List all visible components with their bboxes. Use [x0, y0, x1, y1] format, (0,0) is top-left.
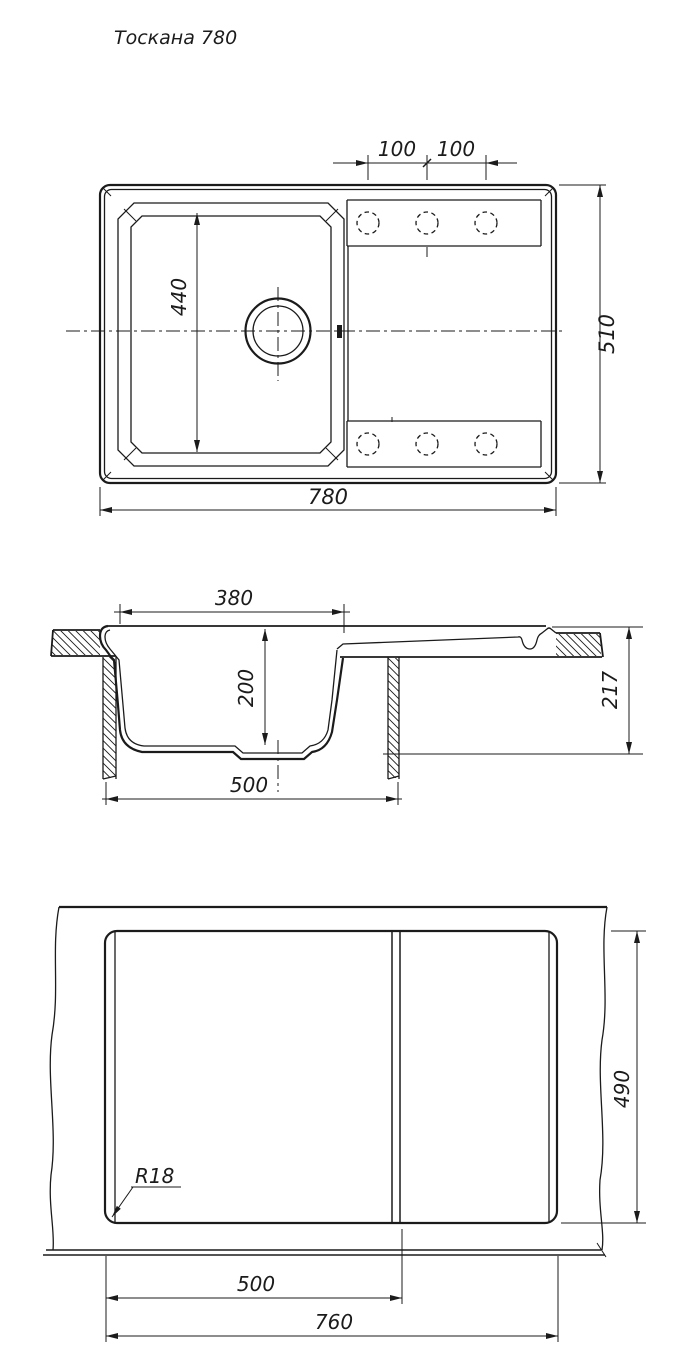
dimension-overall-width: 780: [100, 485, 556, 516]
bowl-inner-edge: [131, 216, 331, 453]
faucet-hole: [475, 433, 497, 455]
countertop-left-hatch: [52, 631, 100, 655]
faucet-strip-bottom: [347, 421, 541, 467]
dimension-overall-depth: 510: [559, 185, 619, 483]
break-line-right: [600, 907, 607, 1250]
drainboard-surface: [337, 628, 556, 649]
faucet-hole: [475, 212, 497, 234]
dim-hole-spacing-left: 100: [378, 137, 416, 161]
faucet-hole: [416, 212, 438, 234]
rim-corner-diagonals: [103, 188, 553, 480]
dim-overall-depth: 510: [595, 314, 619, 354]
break-line-left: [50, 907, 59, 1250]
faucet-strip-top: [347, 200, 541, 246]
top-view: 100 100 440 780 510: [66, 137, 619, 516]
technical-drawing: Тоскана 780: [0, 0, 696, 1372]
dim-cutout-width: 760: [315, 1310, 353, 1334]
dim-cutout-height: 490: [610, 1070, 634, 1108]
faucet-hole: [357, 433, 379, 455]
strip-center-ticks: [392, 247, 427, 422]
bowl-corner-diagonals: [124, 209, 338, 460]
dimension-cutout-height: 490: [561, 931, 646, 1223]
cutout-inner-edges: [115, 931, 549, 1223]
dimension-bowl-depth: 200: [234, 629, 268, 745]
section-view: 380 200 500 217: [51, 586, 643, 805]
dim-bowl-cutout: 500: [237, 1272, 275, 1296]
dimension-base-width: 500: [102, 773, 402, 805]
dim-corner-radius: R18: [135, 1164, 174, 1188]
faucet-hole: [416, 433, 438, 455]
cutout-divider: [392, 931, 400, 1223]
drawing-title: Тоскана 780: [114, 27, 237, 49]
dim-overall-height: 217: [598, 671, 622, 709]
bowl-interior-profile: [105, 630, 337, 753]
cabinet-wall-right-hatch: [388, 658, 399, 778]
countertop-front-edge: [43, 1250, 605, 1255]
drawing-sheet: Тоскана 780: [0, 0, 696, 1372]
dimension-corner-radius: R18: [112, 1164, 181, 1217]
dim-bowl-length: 440: [167, 278, 191, 316]
dimension-hole-spacing: 100 100: [333, 137, 517, 180]
bowl-exterior-profile: [100, 626, 343, 759]
sink-rim-inner-edge: [105, 190, 552, 479]
dim-bowl-opening: 380: [215, 586, 253, 610]
dimension-overall-height: 217: [383, 627, 643, 754]
cutout-view: R18 500 760 490: [43, 907, 646, 1342]
sink-outer-edge: [100, 185, 556, 483]
dimension-cutout-width: 760: [106, 1256, 558, 1342]
dimension-bowl-length: 440: [167, 213, 200, 452]
dim-base-width: 500: [230, 773, 268, 797]
countertop-right-hatch: [556, 634, 601, 656]
dim-bowl-depth: 200: [234, 669, 258, 707]
dim-overall-width: 780: [308, 485, 348, 509]
faucet-hole: [357, 212, 379, 234]
dimension-bowl-cutout: 500: [106, 1229, 402, 1342]
cabinet-wall-left-hatch: [103, 657, 116, 778]
dim-hole-spacing-right: 100: [437, 137, 475, 161]
